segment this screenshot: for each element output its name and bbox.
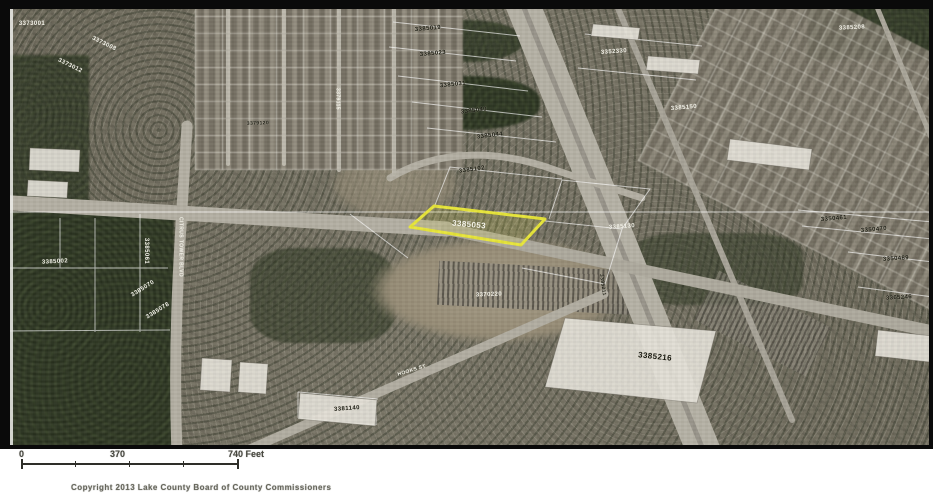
parcel-label: 3385150 [671,104,698,112]
parcel-label: 3385023 [420,50,447,58]
scale-bar-line [22,463,238,465]
parcel-label: 3350470 [861,226,888,234]
scale-middle-label: 370 [110,449,125,459]
labels-layer: 3385053338521633850193385023338503133850… [0,0,933,449]
parcel-label: 3385031 [440,81,467,90]
scale-tick [129,461,130,467]
scale-start-label: 0 [19,449,24,459]
parcel-label: 3385019 [415,25,442,33]
parcel-label: 3385044 [477,131,504,140]
parcel-label: 3385102 [459,165,486,175]
map-frame-inner-strip [10,9,13,449]
scale-end-label: 740 Feet [228,449,264,459]
parcel-label: 3365246 [886,294,912,301]
parcel-label: 3373012 [57,58,83,75]
parcel-label: 3385130 [609,223,636,231]
building-parcel-label: 3385216 [638,351,673,363]
highlighted-parcel-label: 3385053 [452,220,487,231]
road-label: HOOKS ST [397,364,427,377]
parcel-label: 3381140 [334,405,360,413]
parcel-label: 3350489 [883,255,910,263]
scale-tick [21,459,23,469]
road-label: CITRUS TOWER BLVD [178,217,183,277]
map-frame-top [0,0,933,9]
parcel-label: 3385070 [130,280,155,299]
copyright-text: Copyright 2013 Lake County Board of Coun… [71,483,331,492]
parcel-label: 3385078 [145,302,170,321]
parcel-label: 3385040 [461,106,488,115]
parcel-label: 3379120 [247,121,269,127]
parcel-label: 3379115 [335,88,340,110]
parcel-label: 3385208 [839,24,865,31]
parcel-label: 3385002 [42,258,68,265]
scale-tick [75,461,76,467]
parcel-label: 3370220 [476,292,502,299]
map-frame-left [0,0,10,449]
parcel-label: 3385061 [143,238,149,264]
scale-bar: 0 370 740 Feet [0,449,320,479]
parcel-label: 3373001 [19,21,45,27]
parcel-label: 3350461 [821,215,848,223]
scale-tick [183,461,184,467]
parcel-label: 3352330 [601,48,628,56]
map-frame-right [929,0,933,449]
scale-tick [237,459,239,469]
parcel-label: 3385211 [598,274,606,296]
map-canvas: 3385053338521633850193385023338503133850… [0,0,933,449]
parcel-map-screenshot: 3385053338521633850193385023338503133850… [0,0,950,500]
parcel-label: 3373008 [91,36,117,53]
